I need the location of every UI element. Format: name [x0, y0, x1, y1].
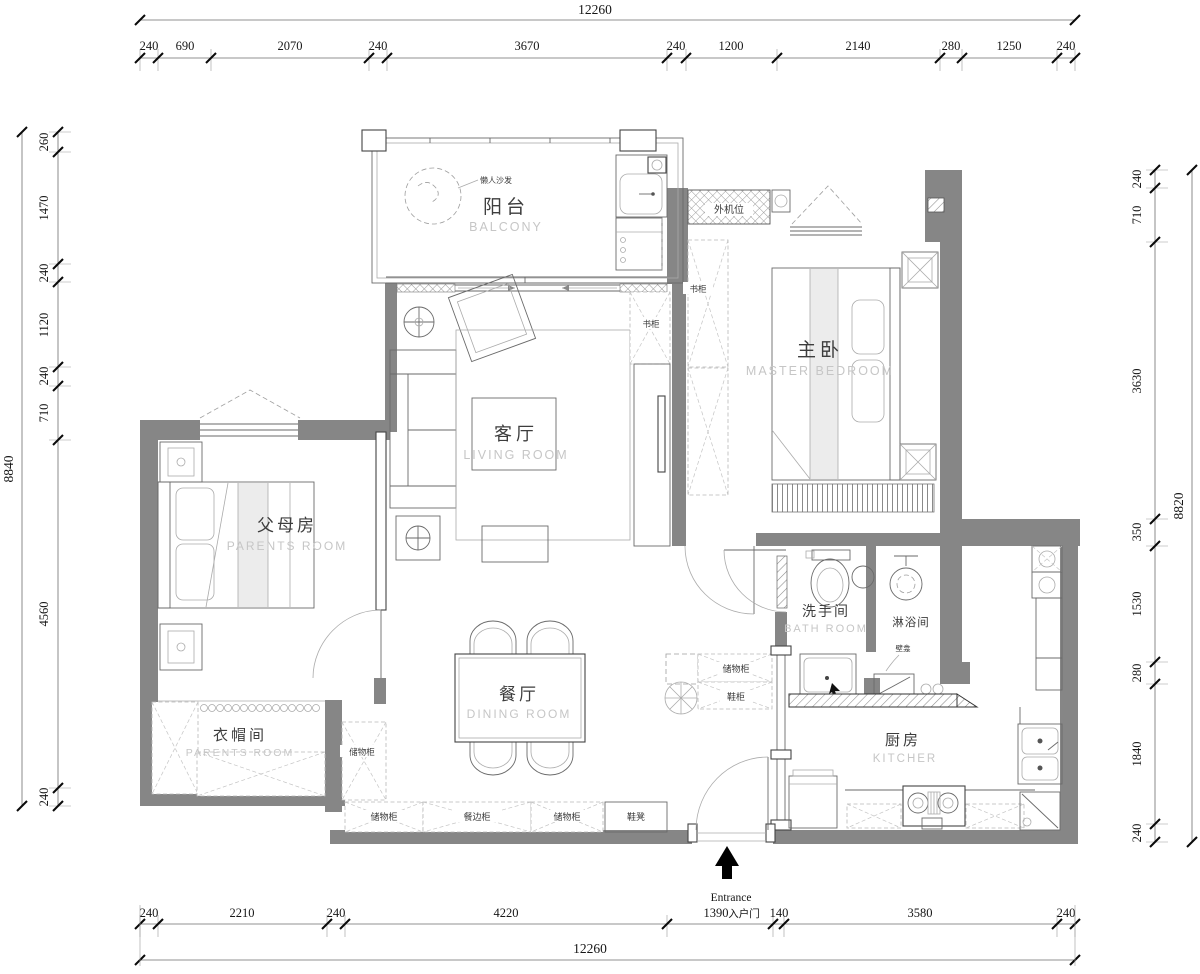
dim-left-2: 240: [37, 264, 51, 283]
dim-left-0: 260: [37, 133, 51, 152]
shower-label-cn: 淋浴间: [892, 616, 930, 629]
room-kitchen: 厨房 KITCHER: [789, 546, 1062, 830]
entrance-door: [688, 757, 775, 842]
washing-machine-icon: [616, 218, 662, 270]
vanity-icon: [800, 654, 856, 698]
sofa-icon: [390, 350, 456, 508]
living-label-cn: 客厅: [494, 424, 538, 444]
dim-right-2: 3630: [1130, 369, 1144, 394]
dim-bottom-total: 12260: [573, 941, 607, 956]
dim-left-7: 240: [37, 788, 51, 807]
dimension-left: 260 1470 240 1120 240 710 4560 240 8840: [1, 127, 71, 811]
dining-label-cn: 餐厅: [499, 685, 539, 704]
room-dining: 餐厅 DINING ROOM: [455, 621, 585, 775]
parents-label-cn: 父母房: [257, 516, 317, 535]
dim-left-1: 1470: [37, 196, 51, 221]
shower-head-icon: [890, 556, 922, 600]
dim-left-3: 1120: [37, 313, 51, 338]
nightstand-icon: [160, 442, 202, 482]
dim-right-total: 8820: [1171, 492, 1186, 519]
hanger-rail-icon: [201, 705, 320, 712]
dim-bot-5: 140: [770, 906, 789, 920]
dim-bot-4: 1390: [704, 906, 729, 920]
column: [362, 130, 386, 151]
bean-bag: [405, 168, 461, 224]
dim-right-0: 240: [1130, 170, 1144, 189]
footstool: [482, 526, 548, 562]
entrance-label-en: Entrance: [711, 892, 752, 904]
dim-left-6: 4560: [37, 602, 51, 627]
column: [620, 130, 656, 151]
laundry-sink-icon: [616, 155, 667, 217]
dim-top-total: 12260: [578, 2, 612, 17]
stove-icon: [903, 786, 965, 829]
dim-top-9: 1250: [997, 39, 1022, 53]
dim-right-7: 240: [1130, 824, 1144, 843]
living-label-en: LIVING ROOM: [463, 448, 568, 462]
bath-label-cn: 洗手间: [802, 604, 850, 620]
sideboard-label: 餐边柜: [463, 811, 490, 822]
dim-top-2: 2070: [278, 39, 303, 53]
nightstand-icon: [160, 624, 202, 670]
toilet-icon: [806, 550, 850, 607]
dim-right-6: 1840: [1130, 742, 1144, 767]
kitchen-label-cn: 厨房: [885, 732, 921, 749]
dim-bot-6: 3580: [908, 906, 933, 920]
room-cloak: 衣帽间 PARENTS ROOM: [152, 701, 325, 796]
walls: [140, 170, 1080, 844]
cloak-label-en: PARENTS ROOM: [186, 747, 294, 759]
tv: [658, 396, 665, 472]
dim-right-5: 280: [1130, 664, 1144, 683]
entry-hall: 储物柜 鞋柜 Entrance 入户门: [665, 646, 791, 920]
dim-top-3: 240: [369, 39, 388, 53]
corner-cabinet: [1020, 792, 1060, 830]
dimension-right: 240 710 3630 350 1530 280 1840 240 8820: [1130, 165, 1197, 847]
dimension-bottom: 240 2210 240 4220 1390 140 3580 240 1226…: [135, 905, 1080, 966]
tall-cabinet-column: [1020, 546, 1062, 724]
radiator: [772, 484, 934, 512]
entrance-arrow-icon: [715, 846, 739, 879]
room-balcony: 懒人沙发 阳台 BALCONY: [362, 130, 683, 283]
dim-right-3: 350: [1130, 523, 1144, 542]
balcony-label-en: BALCONY: [469, 220, 543, 234]
dining-label-en: DINING ROOM: [467, 707, 572, 721]
floor-plan: 12260 240 690 2070 240 3670 240 1200 214…: [0, 0, 1200, 969]
dim-right-4: 1530: [1130, 592, 1144, 617]
ac-indoor-icon: [902, 252, 938, 288]
floor-lamp-icon: [404, 307, 434, 337]
bath-label-en: BATH ROOM: [784, 623, 868, 635]
dimension-top: 12260 240 690 2070 240 3670 240 1200 214…: [135, 2, 1080, 71]
entrance-label-cn: 入户门: [728, 907, 760, 920]
bookcase-living-label: 书柜: [642, 319, 660, 329]
storage-bottom-left-label: 储物柜: [370, 811, 397, 822]
room-living: 客厅 LIVING ROOM 书柜: [390, 274, 670, 562]
dim-left-5: 710: [37, 404, 51, 423]
dim-top-0: 240: [140, 39, 159, 53]
dim-right-1: 710: [1130, 206, 1144, 225]
kitchen-label-en: KITCHER: [873, 753, 937, 765]
floor-plan-drawing: 12260 240 690 2070 240 3670 240 1200 214…: [0, 0, 1200, 969]
dim-top-6: 1200: [719, 39, 744, 53]
balcony-label-cn: 阳台: [483, 196, 529, 218]
dim-bot-1: 2210: [230, 906, 255, 920]
parents-label-en: PARENTS ROOM: [227, 539, 347, 553]
kitchen-sink-icon: [1018, 724, 1062, 784]
dim-left-total: 8840: [1, 455, 16, 482]
niche-label: 壁龛: [896, 643, 911, 653]
dim-left-4: 240: [37, 367, 51, 386]
ac-platform: 外机位: [688, 186, 944, 235]
lazy-sofa-label: 懒人沙发: [480, 175, 512, 185]
dim-top-1: 690: [176, 39, 195, 53]
master-label-cn: 主卧: [797, 339, 843, 361]
shoe-bench-label: 鞋凳: [627, 811, 645, 822]
dim-bot-7: 240: [1057, 906, 1076, 920]
shoe-cabinet-label: 鞋柜: [727, 691, 745, 702]
room-shower: 淋浴间 壁龛: [874, 556, 943, 698]
plant-icon: [665, 682, 697, 714]
cloak-label-cn: 衣帽间: [213, 727, 267, 744]
dim-top-10: 240: [1057, 39, 1076, 53]
master-door: [685, 546, 754, 614]
dim-top-8: 280: [942, 39, 961, 53]
side-table-icon: [396, 516, 440, 560]
storage-bottom-mid-label: 储物柜: [553, 811, 580, 822]
bookcase-master-label: 书柜: [689, 284, 707, 294]
rug: [456, 330, 630, 540]
ac-indoor-icon: [900, 444, 936, 480]
dim-bot-3: 4220: [494, 906, 519, 920]
tilted-cabinet: [448, 274, 535, 361]
storage-entry-label: 储物柜: [722, 663, 749, 674]
master-label-en: MASTER BEDROOM: [746, 364, 894, 378]
dim-top-7: 2140: [846, 39, 871, 53]
dim-bot-2: 240: [327, 906, 346, 920]
dim-bot-0: 240: [140, 906, 159, 920]
dim-top-4: 3670: [515, 39, 540, 53]
dim-top-5: 240: [667, 39, 686, 53]
parents-door: [313, 432, 386, 678]
storage-side-label: 储物柜: [349, 747, 375, 757]
fridge-icon: [789, 770, 837, 828]
ac-platform-label: 外机位: [714, 203, 744, 216]
